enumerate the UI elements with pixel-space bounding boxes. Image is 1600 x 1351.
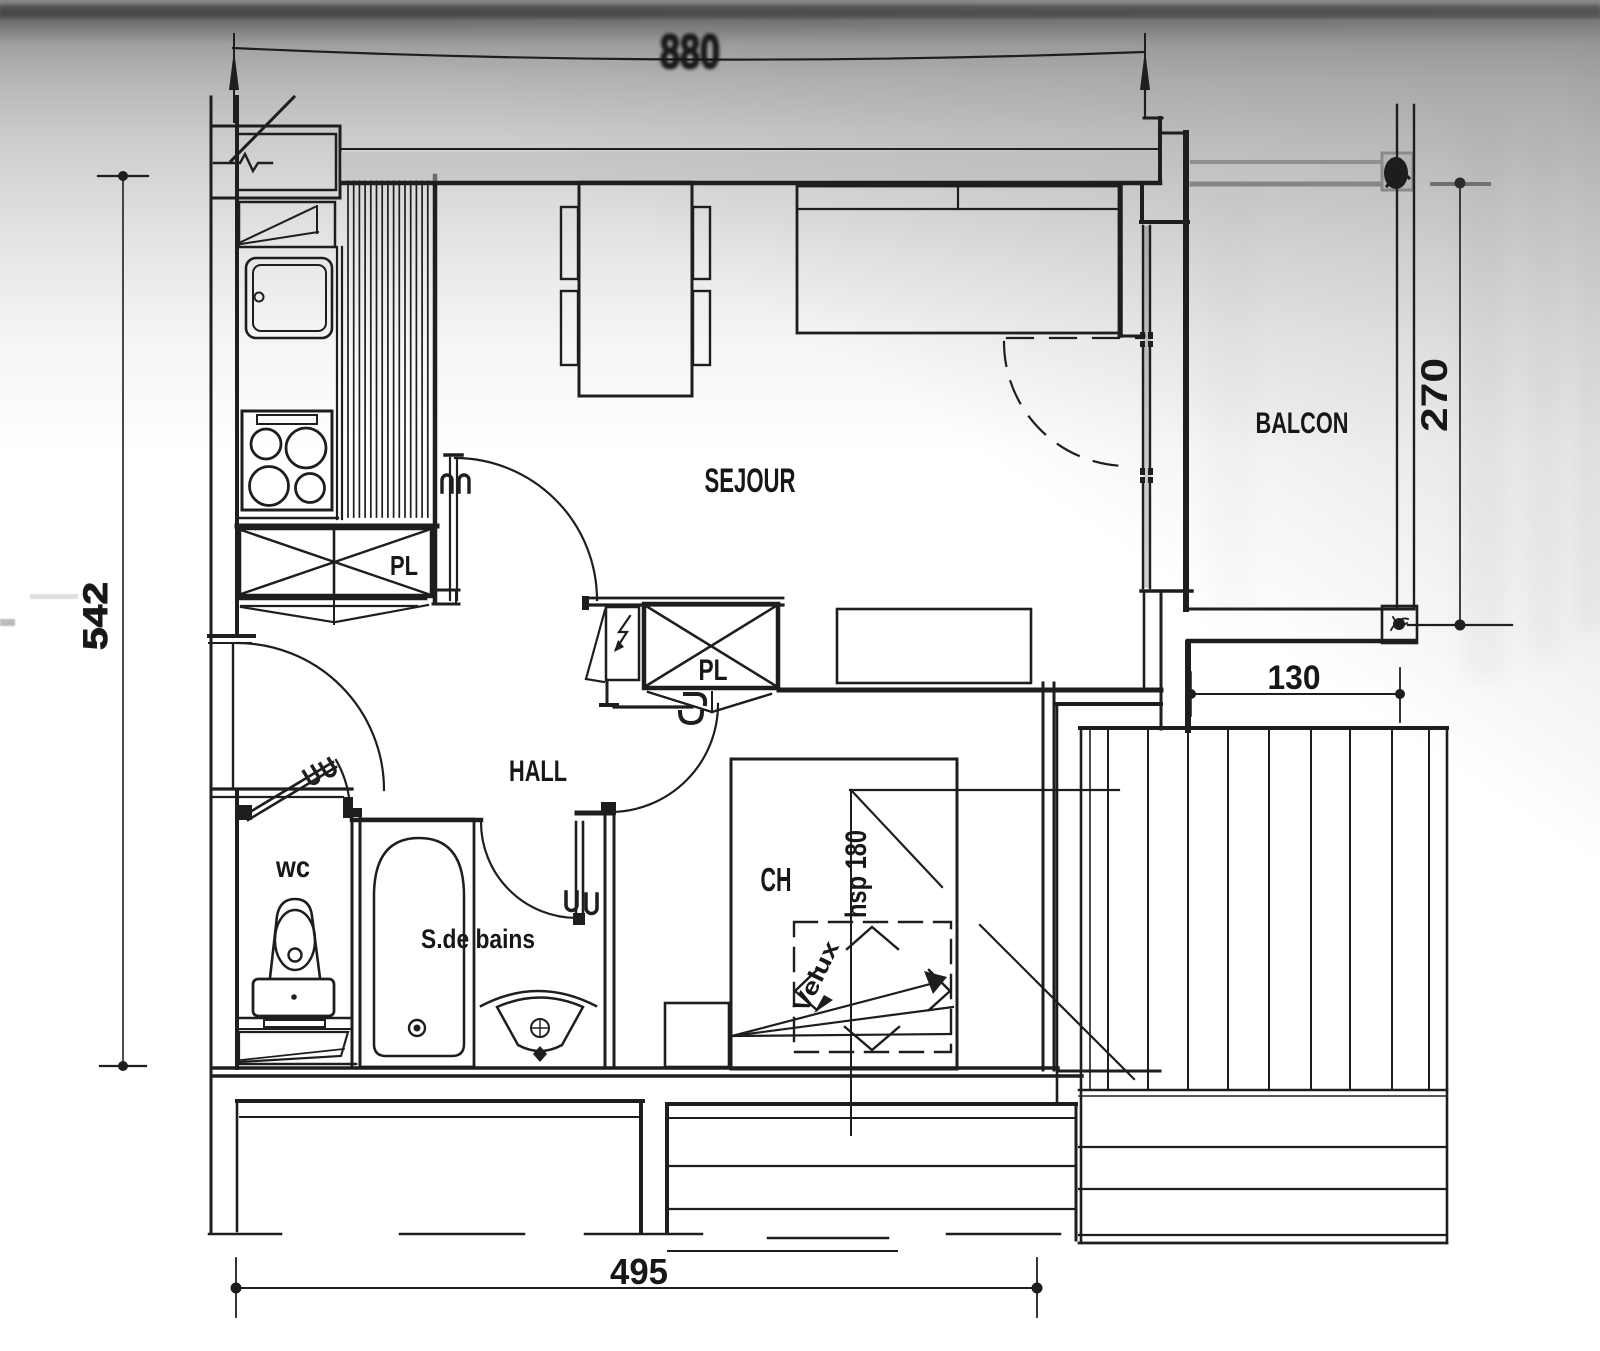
svg-text:PL: PL: [390, 550, 418, 581]
svg-text:270: 270: [1414, 358, 1455, 432]
svg-text:S.de bains: S.de bains: [421, 924, 535, 954]
svg-text:130: 130: [1268, 659, 1321, 697]
svg-text:CH: CH: [761, 861, 792, 898]
svg-text:880: 880: [660, 26, 720, 79]
svg-text:PL: PL: [699, 654, 728, 687]
svg-text:495: 495: [610, 1251, 668, 1292]
svg-text:HALL: HALL: [509, 755, 567, 788]
svg-text:wc: wc: [275, 851, 310, 884]
svg-text:SEJOUR: SEJOUR: [705, 462, 796, 500]
svg-text:BALCON: BALCON: [1256, 407, 1349, 440]
svg-text:542: 542: [77, 582, 115, 650]
svg-text:hsp 180: hsp 180: [840, 830, 873, 918]
